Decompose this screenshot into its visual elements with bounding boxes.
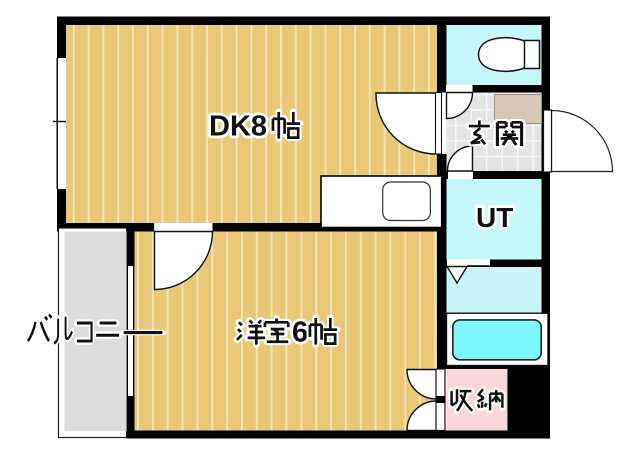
svg-text:6: 6 <box>292 317 308 349</box>
svg-text:UT: UT <box>476 202 513 233</box>
svg-text:DK8: DK8 <box>209 111 267 143</box>
